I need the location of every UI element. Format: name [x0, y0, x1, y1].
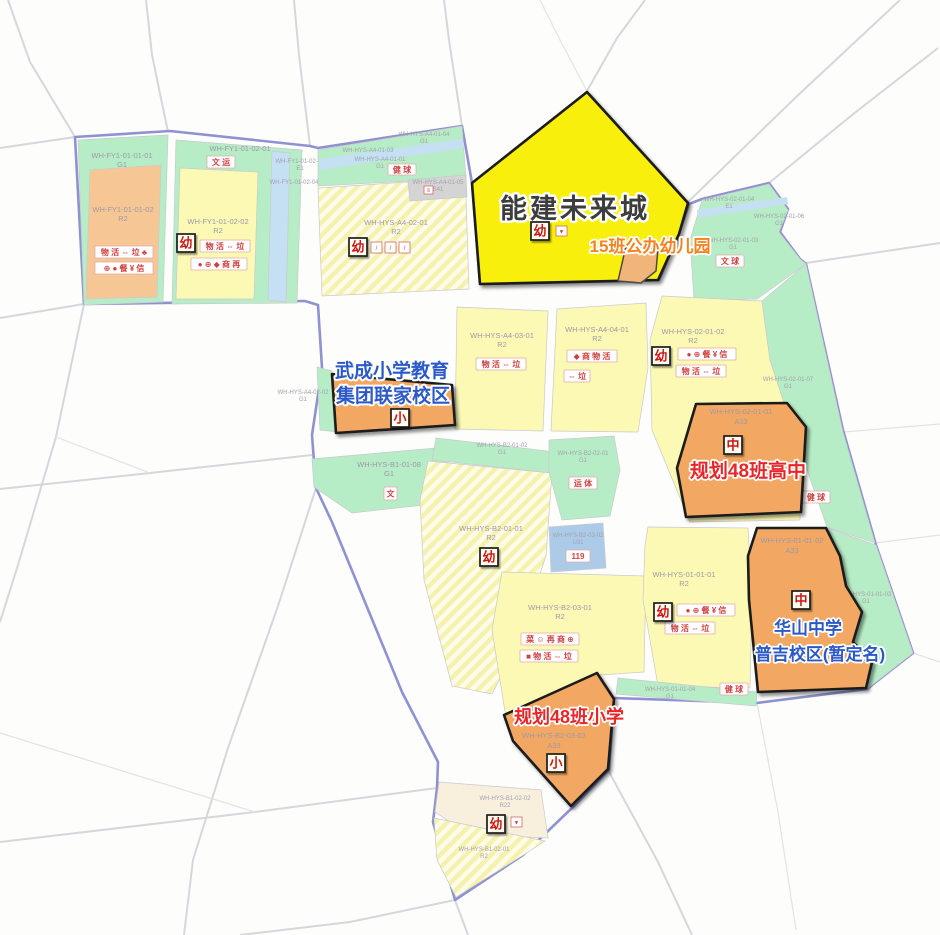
parcel-use: G1 — [117, 160, 127, 169]
parcel-code: WH-HYS-A4-02-01 — [364, 218, 428, 227]
icon-row-services: 物 活 ⇔ 垃 — [476, 358, 526, 370]
parcel-code: WH-HYS-02-01-01 — [710, 407, 773, 416]
parcel-use: G1 — [666, 694, 675, 700]
parcel-use: G1 — [729, 245, 738, 251]
svg-text:幼: 幼 — [656, 605, 669, 620]
parcel-use: G1 — [420, 139, 429, 145]
parcel-fy1-01-02-03 — [268, 151, 290, 302]
parcel-code: WH-HYS-B2-01-01 — [459, 524, 523, 533]
parcel-b2-03-02-fire-station — [549, 523, 606, 572]
svg-text:■ 物 活 ⇔ 垃: ■ 物 活 ⇔ 垃 — [526, 651, 572, 661]
parcel-code: WH-HYS-01-01-04 — [645, 687, 696, 693]
parcel-code: WH-HYS-B2-03-03 — [522, 731, 586, 740]
svg-text:物 活 ⇔ 垃: 物 活 ⇔ 垃 — [682, 366, 721, 376]
svg-text:中: 中 — [726, 438, 739, 453]
wucheng-label-line2: 集团联家校区 — [335, 384, 450, 407]
middle-badge: 中 — [792, 591, 810, 609]
fire-119-badge: 119 — [566, 550, 590, 562]
svg-text:物 活 ⇔ 垃: 物 活 ⇔ 垃 — [206, 241, 245, 251]
svg-text:● ⊕ ◆ 商 再: ● ⊕ ◆ 商 再 — [198, 259, 241, 269]
primary48-label: 规划48班小学 — [514, 706, 624, 727]
kindergarten-badge: 幼 — [487, 815, 505, 833]
kg15-label: 15班公办幼儿园 — [590, 236, 711, 256]
parcel-use: E1 — [725, 204, 733, 210]
parcel-fy1-01-01-02 — [86, 165, 161, 299]
middle-badge: 中 — [724, 436, 742, 454]
huashan-label-line2: 普吉校区(暂定名) — [755, 644, 885, 664]
svg-text:119: 119 — [572, 552, 585, 561]
parcel-code: WH-FY1-01-02-04 — [269, 180, 319, 186]
parcel-code: WH-HYS-A4-01-04 — [398, 132, 450, 138]
kindergarten-badge: 幼 — [654, 603, 672, 621]
parcel-code: WH-HYS-A4-01-05 — [412, 180, 464, 186]
parcel-use: R2 — [118, 214, 128, 223]
svg-text:≡: ≡ — [427, 188, 431, 194]
parcel-code: WH-HYS-02-01-03 — [708, 238, 759, 244]
parcel-code: WH-FY1-01-02-02 — [187, 217, 248, 226]
kindergarten-badge: 幼 — [652, 347, 670, 365]
parcel-use: G1 — [299, 397, 308, 403]
svg-text:菜 ☺ 再 商 ⊕: 菜 ☺ 再 商 ⊕ — [525, 634, 574, 644]
svg-text:小: 小 — [549, 756, 562, 771]
svg-text:⇔ 垃: ⇔ 垃 — [568, 371, 586, 381]
parcel-code: WH-HYS-01-01-02 — [761, 536, 824, 545]
svg-text:健 球: 健 球 — [393, 165, 412, 175]
kindergarten-badge: 幼 — [177, 234, 195, 252]
parcel-use: U31 — [572, 540, 584, 546]
parcel-code: WH-HYS-B2-01-02 — [476, 443, 528, 449]
parcel-use: R2 — [391, 227, 401, 236]
huashan-label-line1: 华山中学 — [774, 618, 842, 638]
parcel-use: R2 — [486, 533, 496, 542]
parcel-code: WH-HYS-A4-04-01 — [565, 325, 629, 334]
wucheng-label-line1: 武成小学教育 — [335, 359, 449, 382]
parcel-code: WH-HYS-B1-02-01 — [458, 847, 510, 853]
icon-pair-fitness: 健 球 — [720, 683, 748, 695]
svg-text:▼: ▼ — [559, 230, 565, 236]
kindergarten-badge: 幼 — [480, 548, 498, 566]
parcel-code: WH-HYS-02-01-04 — [704, 197, 755, 203]
parcel-code: WH-HYS-02-01-06 — [754, 214, 805, 220]
block-fy1: WH-FY1-01-01-01 G1 WH-FY1-01-01-02 R2 WH… — [78, 135, 325, 305]
parcel-use: G1 — [376, 164, 385, 170]
planning-map: WH-FY1-01-01-01 G1 WH-FY1-01-01-02 R2 WH… — [0, 0, 940, 935]
kindergarten-badge: 幼 — [349, 238, 367, 256]
parcel-code: WH-HYS-A4-01-03 — [342, 148, 394, 154]
svg-text:健 球: 健 球 — [807, 492, 826, 502]
svg-text:幼: 幼 — [654, 349, 667, 364]
parcel-a4-02-01-hatched — [318, 182, 469, 296]
parcel-code: WH-HYS-B1-01-08 — [357, 460, 421, 469]
parcel-use: R2 — [555, 612, 565, 621]
svg-text:幼: 幼 — [179, 236, 192, 251]
primary-badge: 小 — [547, 754, 565, 772]
parcel-use: A33 — [785, 546, 798, 555]
parcel-code: WH-FY1-01-02-01 — [209, 144, 270, 153]
nengjian-label: 能建未来城 — [500, 193, 650, 224]
parcel-use: R2 — [497, 340, 507, 349]
parcel-code: WH-HYS-B2-03-01 — [528, 603, 592, 612]
parcel-use: R2 — [679, 579, 689, 588]
parcel-use: A33 — [547, 741, 560, 750]
svg-text:文: 文 — [387, 489, 396, 499]
svg-text:物 活 ⇔ 垃 ♣: 物 活 ⇔ 垃 ♣ — [101, 247, 148, 257]
icon-pair-fitness: 健 球 — [802, 491, 830, 503]
parcel-a4-04-01 — [551, 303, 648, 432]
parcel-use: S41 — [433, 187, 444, 193]
kindergarten-badge: 幼 — [531, 222, 549, 240]
parcel-code: WH-HYS-B2-03-02 — [552, 533, 604, 539]
parcel-code: WH-HYS-01-01-01 — [653, 570, 716, 579]
svg-text:文 运: 文 运 — [212, 157, 230, 167]
icon-pair-sport: 运 体 — [569, 477, 597, 489]
parcel-code: WH-HYS-A4-02-02 — [277, 390, 329, 396]
svg-text:物 活 ⇔ 垃: 物 活 ⇔ 垃 — [482, 359, 521, 369]
parcel-code: WH-FY1-01-01-01 — [91, 151, 152, 160]
parcel-use: G1 — [862, 599, 871, 605]
svg-text:幼: 幼 — [489, 817, 502, 832]
parcel-code: WH-HYS-B1-02-02 — [479, 796, 531, 802]
svg-text:● ⊕ 餐 ¥ 信: ● ⊕ 餐 ¥ 信 — [687, 349, 728, 359]
parcel-use: G1 — [784, 384, 793, 390]
parcel-code: WH-HYS-02-01-07 — [763, 377, 814, 383]
block-a4: WH-HYS-A4-01-04 G1 WH-HYS-A4-01-03 WH-HY… — [318, 126, 469, 296]
svg-text:中: 中 — [794, 593, 807, 608]
parcel-code: WH-HYS-B2-02-01 — [557, 451, 609, 457]
parcel-use: R2 — [592, 334, 602, 343]
primary-badge: 小 — [391, 409, 409, 427]
parcel-use: G1 — [775, 221, 784, 227]
svg-text:● ⊕ 餐 ¥ 信: ● ⊕ 餐 ¥ 信 — [686, 605, 727, 615]
svg-text:幼: 幼 — [351, 240, 364, 255]
parcel-code: WH-HYS-02-01-02 — [662, 327, 725, 336]
parcel-code: WH-FY1-01-01-02 — [92, 205, 153, 214]
icon-pair-culture-ball: 文 球 — [716, 255, 744, 267]
svg-text:幼: 幼 — [482, 550, 495, 565]
svg-text:物 活 ⇔ 垃: 物 活 ⇔ 垃 — [671, 623, 710, 633]
highschool-label: 规划48班高中 — [690, 459, 806, 482]
parcel-code: WH-HYS-A4-03-01 — [470, 331, 534, 340]
icon-pair-fitness: 健 球 — [388, 164, 416, 175]
icon-culture: 文 — [384, 487, 397, 500]
parcel-use: G1 — [498, 450, 507, 456]
svg-text:▼: ▼ — [514, 821, 520, 827]
parcel-use: A33 — [734, 417, 747, 426]
parcel-use: R22 — [499, 803, 511, 809]
parcel-use: G1 — [384, 469, 394, 478]
svg-text:幼: 幼 — [533, 224, 546, 239]
svg-text:◆ 商 物 活: ◆ 商 物 活 — [574, 351, 611, 361]
parcel-use: E1 — [296, 166, 304, 172]
svg-text:运 体: 运 体 — [574, 478, 593, 488]
svg-text:健 球: 健 球 — [725, 684, 744, 694]
parcel-use: R2 — [213, 226, 223, 235]
svg-text:文 球: 文 球 — [721, 256, 740, 266]
parcel-use: G1 — [579, 458, 588, 464]
parcel-code: WH-HYS-A4-01-01 — [354, 157, 406, 163]
svg-text:⊕ ● 餐 ¥ 信: ⊕ ● 餐 ¥ 信 — [104, 263, 145, 273]
parcel-use: R2 — [688, 336, 698, 345]
icon-pair-culture-sport: 文 运 — [207, 156, 235, 168]
parcel-use: R2 — [480, 854, 488, 860]
svg-text:小: 小 — [393, 411, 406, 426]
